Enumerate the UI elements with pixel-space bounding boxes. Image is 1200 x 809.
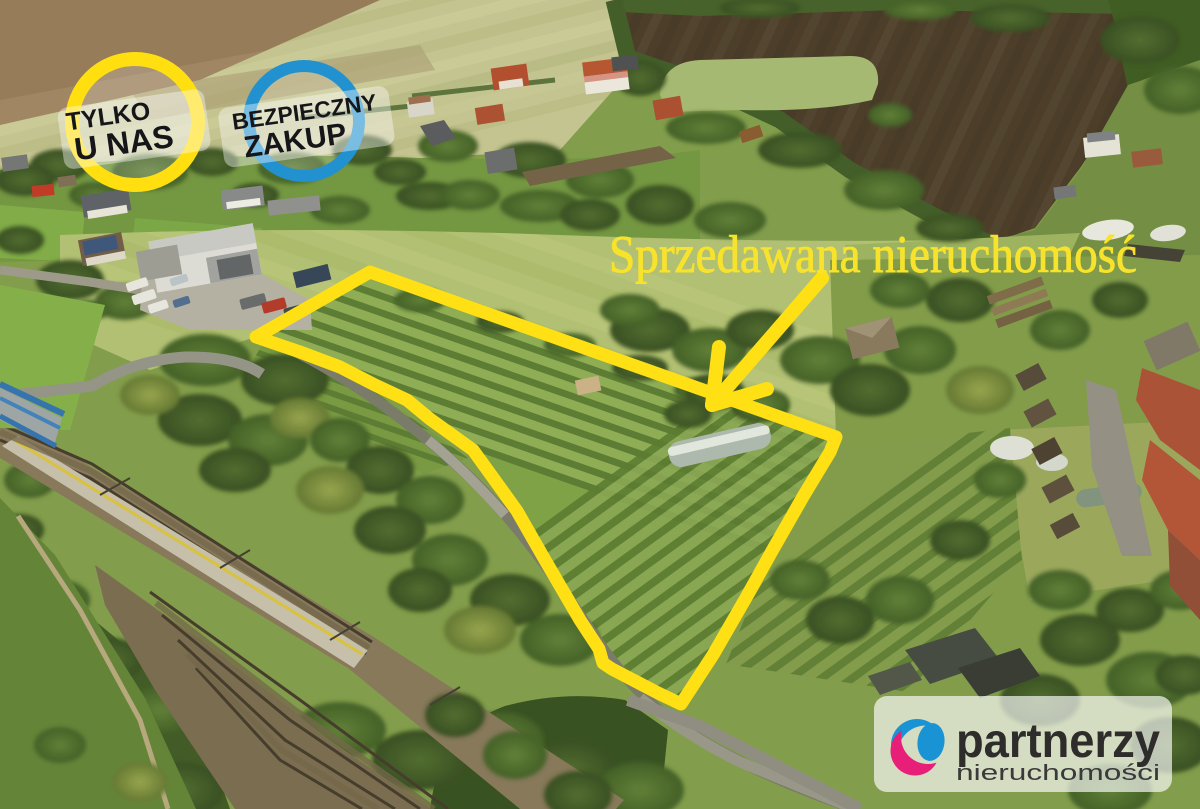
svg-text:Sprzedawana nieruchomość: Sprzedawana nieruchomość — [609, 226, 1137, 284]
svg-text:nieruchomości: nieruchomości — [956, 760, 1160, 785]
